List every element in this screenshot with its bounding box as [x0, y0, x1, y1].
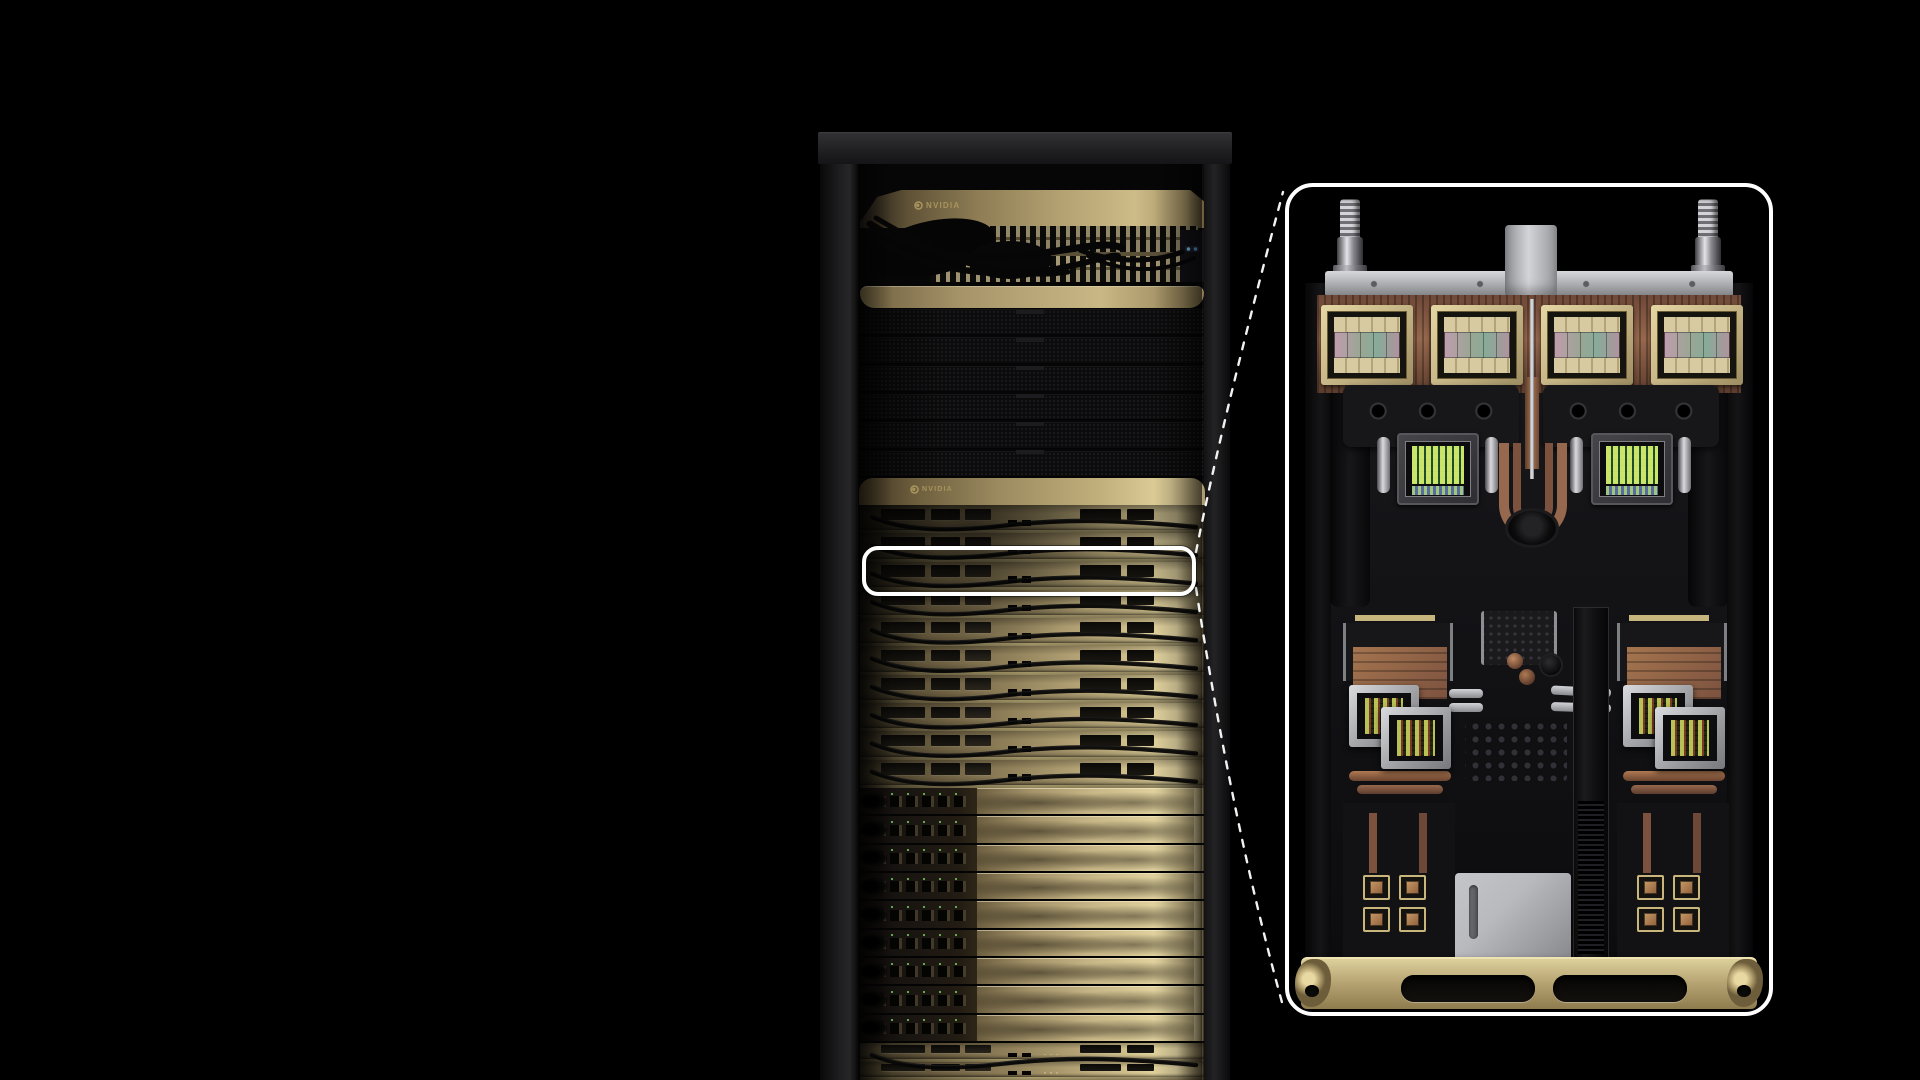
center-module-cartridge: [1573, 607, 1609, 959]
pump-disc: [1508, 511, 1556, 545]
handle-cutout: [1553, 975, 1687, 1002]
copper-heat-pipe: [1631, 785, 1717, 794]
small-gold-chip: [1399, 907, 1426, 932]
qd-fitting: [1678, 437, 1691, 493]
latch-hook-right: [1727, 959, 1763, 1007]
small-gold-chip: [1363, 907, 1390, 932]
copper-thumbscrew: [1507, 653, 1523, 669]
copper-riser: [1693, 813, 1701, 873]
center-riser-block: [1505, 225, 1557, 297]
black-knob: [1541, 655, 1561, 675]
io-cluster-right: [1615, 613, 1733, 963]
qd-tip: [1698, 199, 1718, 239]
copper-thumbscrew: [1519, 669, 1535, 685]
tray-detail-inset: [1285, 183, 1773, 1016]
tray-highlight-box: [862, 546, 1196, 596]
cpu-package: [1397, 433, 1479, 505]
copper-riser: [1419, 813, 1427, 873]
gpu-package: [1541, 305, 1633, 385]
small-gold-chip: [1399, 875, 1426, 900]
copper-riser: [1643, 813, 1651, 873]
gold-strip: [1629, 615, 1709, 621]
silver-mount-plate: [1455, 873, 1571, 961]
leader-line-bottom: [1196, 588, 1283, 1006]
qd-fitting: [1570, 437, 1583, 493]
copper-riser: [1369, 813, 1377, 873]
small-gold-chip: [1673, 875, 1700, 900]
io-cluster-left: [1341, 613, 1459, 963]
small-gold-chip: [1637, 907, 1664, 932]
latch-hook-left: [1295, 959, 1331, 1007]
gold-front-panel: [1301, 957, 1757, 1009]
small-gold-chip: [1637, 875, 1664, 900]
copper-heat-pipe: [1349, 771, 1451, 781]
handle-cutout: [1401, 975, 1535, 1002]
copper-heat-pipe: [1623, 771, 1725, 781]
qd-barrel: [1695, 237, 1721, 267]
gold-strip: [1355, 615, 1435, 621]
nic-package: [1655, 707, 1725, 769]
capacitor-bank: [1465, 717, 1567, 781]
qd-barrel: [1337, 237, 1363, 267]
nic-package: [1381, 707, 1451, 769]
small-gold-chip: [1673, 907, 1700, 932]
copper-heat-pipe: [1357, 785, 1443, 794]
small-gold-chip: [1363, 875, 1390, 900]
qd-tip: [1340, 199, 1360, 239]
mount-plate-slot: [1469, 885, 1478, 939]
scene: NVIDIA: [0, 0, 1920, 1080]
qd-fitting: [1377, 437, 1390, 493]
gpu-package: [1321, 305, 1413, 385]
gpu-package: [1431, 305, 1523, 385]
leader-line-top: [1196, 192, 1283, 552]
cpu-package: [1591, 433, 1673, 505]
gpu-package: [1651, 305, 1743, 385]
